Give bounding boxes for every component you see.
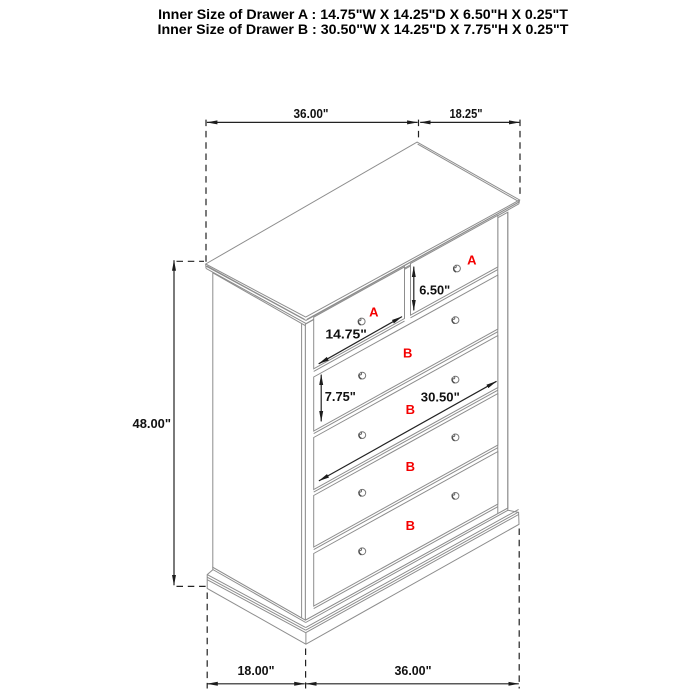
svg-text:A: A [369, 304, 379, 319]
svg-text:36.00": 36.00" [395, 663, 432, 678]
svg-text:B: B [406, 402, 415, 417]
svg-text:B: B [406, 459, 415, 474]
svg-text:18.25": 18.25" [450, 106, 483, 121]
svg-text:7.75": 7.75" [325, 389, 356, 404]
svg-text:36.00": 36.00" [294, 106, 329, 121]
svg-text:18.00": 18.00" [238, 663, 275, 678]
svg-text:B: B [406, 518, 415, 533]
svg-text:30.50": 30.50" [421, 390, 460, 405]
svg-text:14.75": 14.75" [325, 327, 367, 342]
svg-text:48.00": 48.00" [133, 416, 172, 431]
svg-text:6.50": 6.50" [419, 282, 450, 297]
svg-text:B: B [403, 345, 412, 360]
svg-text:A: A [467, 252, 477, 267]
